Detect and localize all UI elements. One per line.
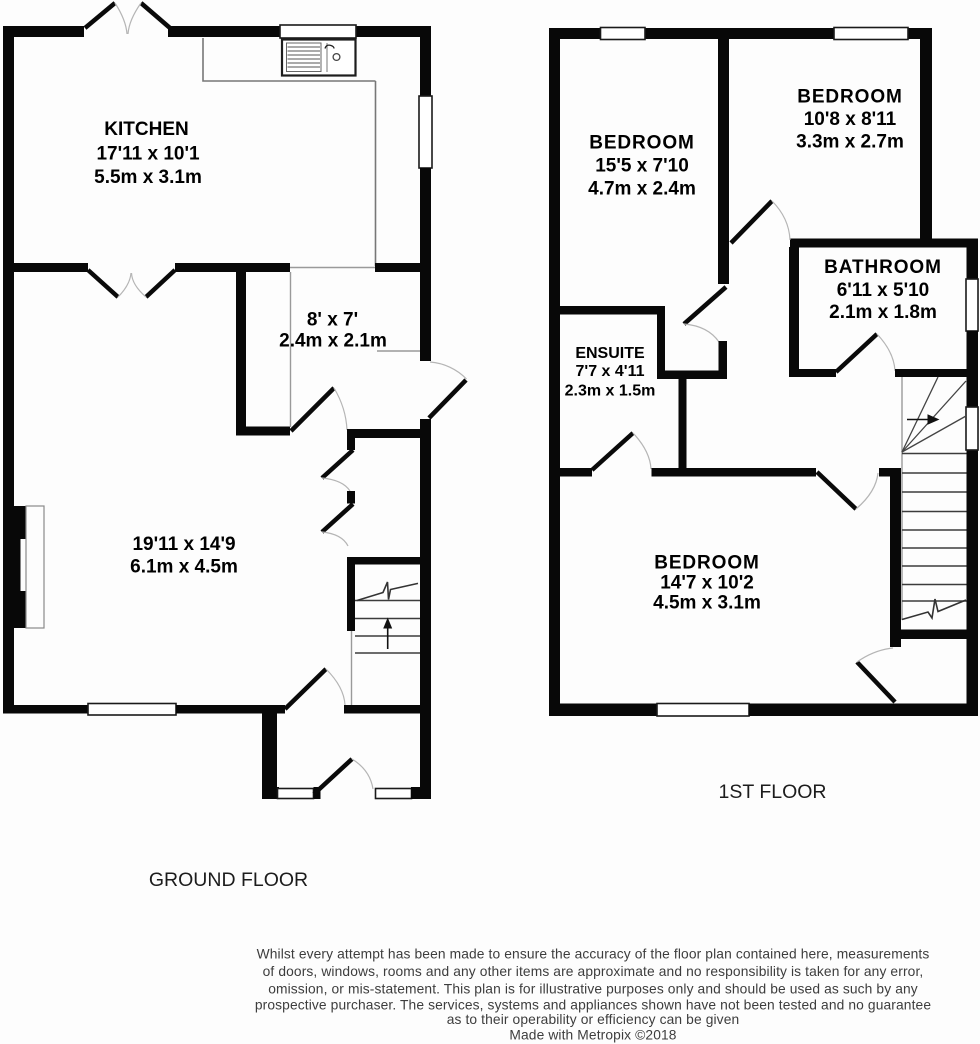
svg-text:1ST FLOOR: 1ST FLOOR <box>718 781 826 803</box>
svg-text:BEDROOM: BEDROOM <box>589 133 695 154</box>
svg-text:of doors, windows, rooms and a: of doors, windows, rooms and any other i… <box>263 964 924 979</box>
svg-text:2.4m x 2.1m: 2.4m x 2.1m <box>279 331 387 352</box>
svg-text:17'11 x 10'1: 17'11 x 10'1 <box>96 144 200 165</box>
svg-text:prospective purchaser. The ser: prospective purchaser. The services, sys… <box>255 998 932 1013</box>
svg-text:4.5m x 3.1m: 4.5m x 3.1m <box>653 593 761 614</box>
svg-text:omission, or mis-statement. Th: omission, or mis-statement. This plan is… <box>268 981 918 996</box>
svg-text:as to their operability or eff: as to their operability or efficiency ca… <box>447 1012 740 1027</box>
svg-text:5.5m x 3.1m: 5.5m x 3.1m <box>94 167 202 188</box>
svg-text:4.7m x 2.4m: 4.7m x 2.4m <box>588 179 696 200</box>
svg-text:KITCHEN: KITCHEN <box>104 119 188 140</box>
svg-text:6'11 x 5'10: 6'11 x 5'10 <box>837 280 930 301</box>
svg-text:3.3m x 2.7m: 3.3m x 2.7m <box>796 132 904 153</box>
svg-text:6.1m x 4.5m: 6.1m x 4.5m <box>130 557 238 578</box>
svg-text:14'7 x 10'2: 14'7 x 10'2 <box>660 573 754 594</box>
svg-text:15'5 x 7'10: 15'5 x 7'10 <box>595 156 689 177</box>
svg-text:Whilst every attempt has been: Whilst every attempt has been made to en… <box>257 947 930 962</box>
svg-text:8' x 7': 8' x 7' <box>307 310 358 331</box>
svg-text:10'8 x 8'11: 10'8 x 8'11 <box>804 109 897 130</box>
svg-text:GROUND FLOOR: GROUND FLOOR <box>149 869 308 891</box>
svg-text:BEDROOM: BEDROOM <box>654 553 760 574</box>
svg-text:2.3m x 1.5m: 2.3m x 1.5m <box>565 383 656 400</box>
svg-text:Made with Metropix ©2018: Made with Metropix ©2018 <box>509 1027 676 1042</box>
svg-text:7'7 x 4'11: 7'7 x 4'11 <box>575 363 644 380</box>
svg-text:19'11 x 14'9: 19'11 x 14'9 <box>132 534 235 555</box>
svg-text:BEDROOM: BEDROOM <box>797 87 903 108</box>
svg-text:ENSUITE: ENSUITE <box>575 345 645 362</box>
svg-text:2.1m x 1.8m: 2.1m x 1.8m <box>829 302 937 323</box>
svg-text:BATHROOM: BATHROOM <box>824 257 942 278</box>
